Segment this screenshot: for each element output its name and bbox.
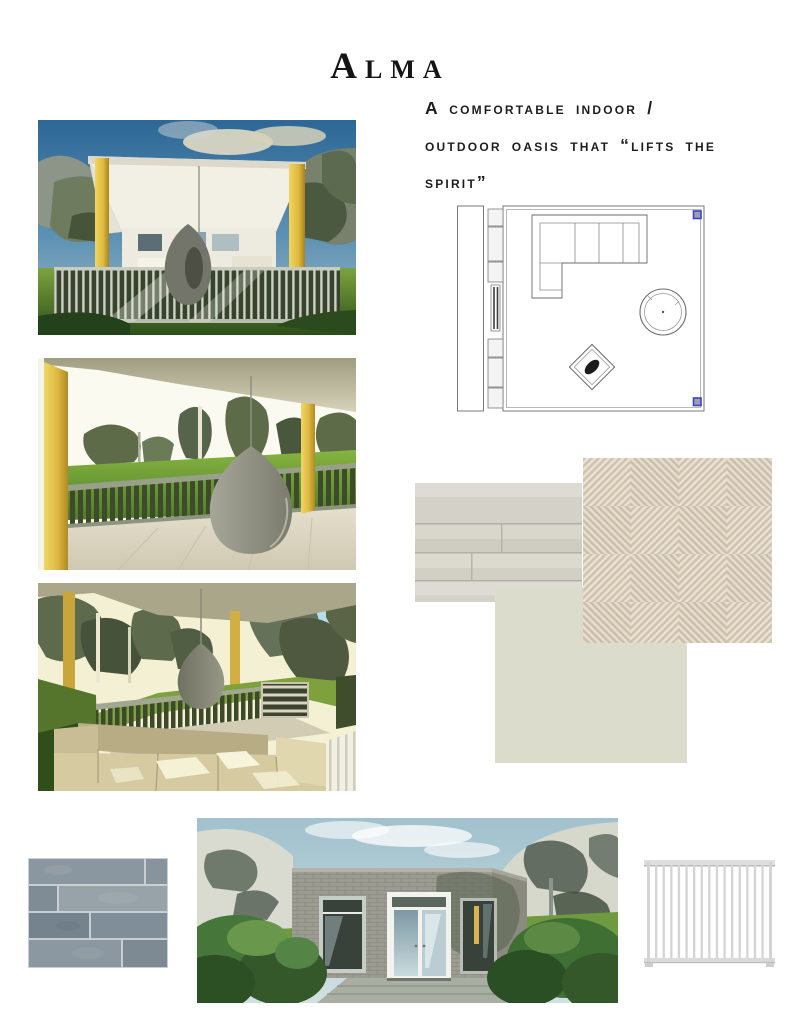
left-window	[319, 896, 366, 973]
tagline-line-1: A comfortable indoor /	[425, 90, 797, 127]
render-pavilion-front-image	[38, 120, 356, 335]
garden-room	[292, 867, 527, 978]
railing-panel	[644, 860, 775, 967]
herringbone-weave	[583, 458, 772, 643]
tagline-line-2: outdoor oasis that “lifts the	[425, 127, 797, 164]
tagline-line-3: spirit”	[425, 164, 797, 201]
swatch-white-railing	[642, 855, 777, 973]
right-window	[460, 898, 497, 974]
entry-doors	[387, 892, 451, 978]
swivel-chair-plan	[640, 289, 686, 335]
stone-tiles	[29, 859, 167, 967]
render-porch-view-image	[38, 358, 356, 570]
render-sectional-view-image	[38, 583, 356, 791]
crate-shelf	[262, 683, 308, 717]
canopy	[88, 156, 306, 234]
swatch-whitewashed-wood	[415, 483, 582, 602]
page-title: Alma	[0, 45, 780, 88]
mood-board-page: { "title": "Alma", "tagline": { "lines":…	[0, 0, 800, 1036]
white-railing-corner	[326, 731, 356, 791]
wall-panels	[488, 209, 503, 408]
tagline: A comfortable indoor / outdoor oasis tha…	[425, 90, 797, 201]
swatch-bluestone-tile	[28, 858, 168, 968]
swatch-herringbone-fabric	[583, 458, 772, 643]
render-exterior-entry-image	[197, 818, 618, 1003]
floor-plan-image	[457, 205, 705, 412]
